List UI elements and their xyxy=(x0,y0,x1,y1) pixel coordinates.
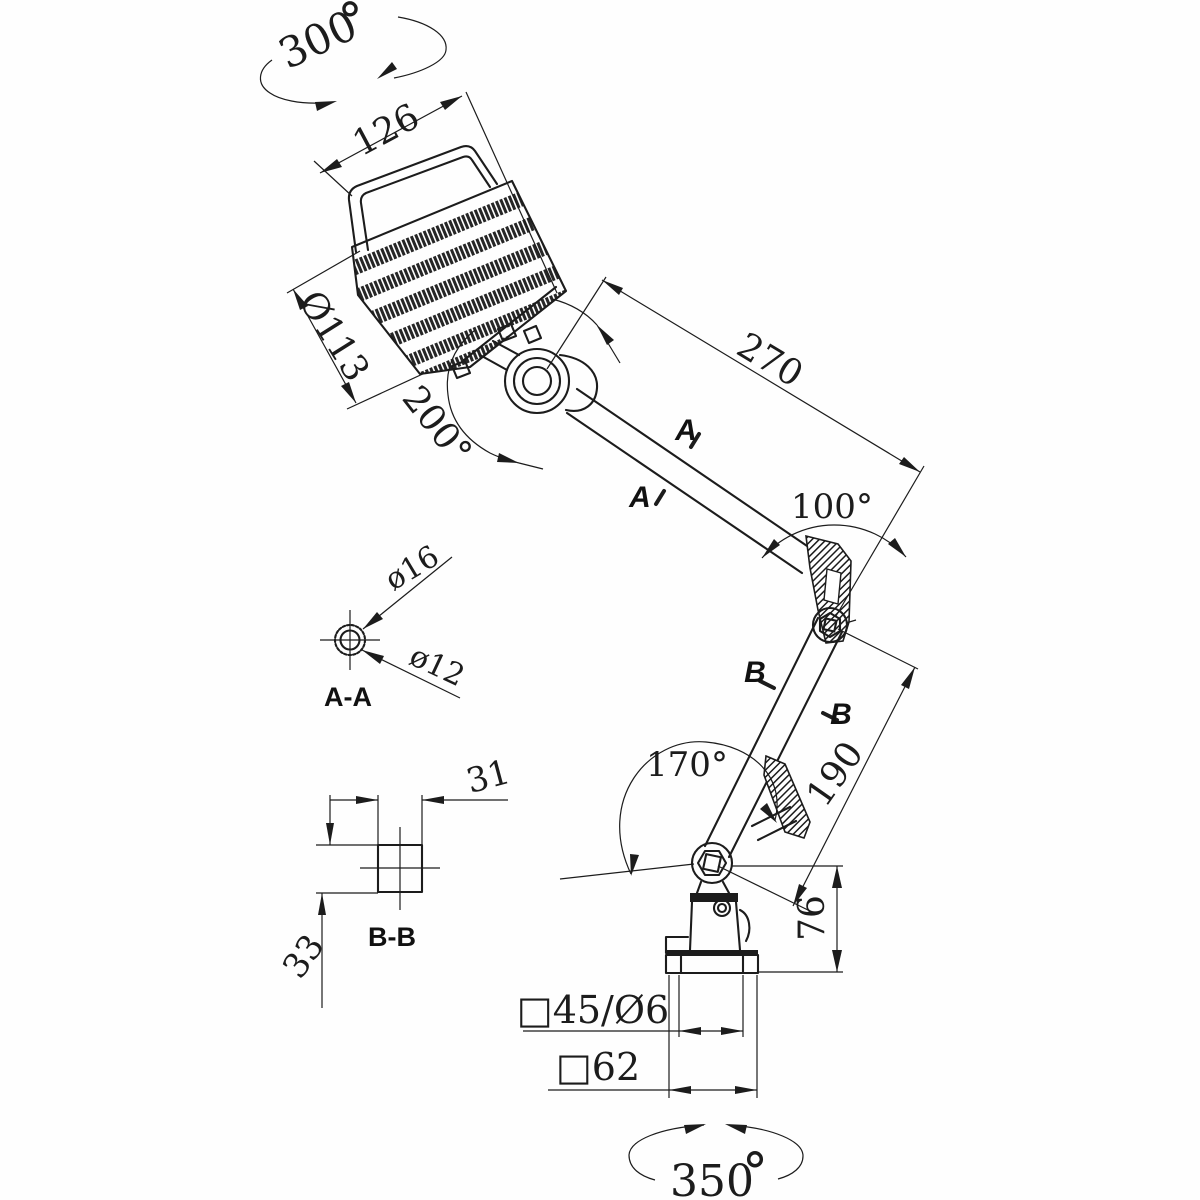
base-joint-angle-label: 170° xyxy=(646,745,728,785)
base-height-label: 76 xyxy=(792,895,833,941)
lower-arm-length-label: 190 xyxy=(799,734,872,814)
section-b-mark-1: B xyxy=(744,656,766,689)
head-swivel-angle-label: 200° xyxy=(394,379,480,473)
head-rotation-degree: ° xyxy=(338,0,363,50)
section-a-mark-1: A xyxy=(674,414,697,447)
base-flange xyxy=(666,955,758,973)
base-plate-size-label: □62 xyxy=(556,1045,640,1089)
upper-arm-length-label: 270 xyxy=(730,325,810,396)
head-knuckle-joint xyxy=(505,326,597,413)
technical-drawing-canvas: 300 ° 126 Ø113 200° 270 100° A A ø16 ø12… xyxy=(0,0,1200,1200)
section-bb-detail xyxy=(360,827,440,910)
section-bb-title: B-B xyxy=(368,922,416,952)
elbow-angle-label: 100° xyxy=(791,487,873,527)
lamp-head xyxy=(332,146,620,394)
section-a-mark-2: A xyxy=(628,481,651,514)
base-joint xyxy=(692,843,732,883)
base-pedestal xyxy=(666,882,758,973)
bb-height-label: 33 xyxy=(275,927,333,985)
knuckle-tab xyxy=(524,326,541,343)
head-width-label: 126 xyxy=(346,96,426,164)
bb-width-label: 31 xyxy=(462,752,514,802)
aa-inner-dia-label: ø12 xyxy=(404,639,470,694)
lower-arm xyxy=(705,618,842,857)
section-b-mark-2: B xyxy=(830,698,852,731)
lamp-handle xyxy=(349,146,497,252)
base-rotation-degree: ° xyxy=(742,1143,768,1200)
section-aa-title: A-A xyxy=(324,682,372,712)
pedestal-collar xyxy=(690,893,738,902)
dimension-labels: 300 ° 126 Ø113 200° 270 100° A A ø16 ø12… xyxy=(271,0,873,1200)
pedestal-screw xyxy=(714,900,730,916)
base-hole-pattern-label: □45/Ø6 xyxy=(517,988,669,1032)
lamp-dimension-drawing: 300 ° 126 Ø113 200° 270 100° A A ø16 ø12… xyxy=(0,0,1200,1200)
